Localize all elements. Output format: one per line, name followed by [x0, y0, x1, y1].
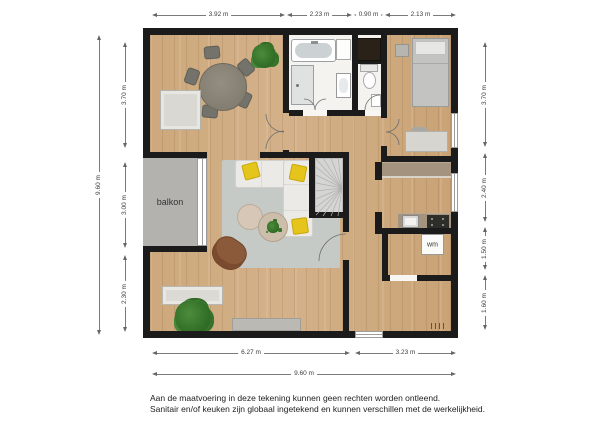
- wall: [451, 28, 458, 113]
- wall: [375, 162, 382, 180]
- bathtub: [291, 39, 336, 62]
- dim-right-4: 1.60 m: [480, 275, 490, 330]
- desk: [405, 131, 448, 152]
- wall: [352, 110, 365, 116]
- dim-top-3-label: 0.90 m: [356, 11, 382, 19]
- dim-left-1: 3.70 m: [120, 42, 130, 148]
- wall: [143, 28, 150, 152]
- wall: [381, 146, 387, 156]
- washing-machine-label: wm: [427, 241, 438, 248]
- door-threshold: [303, 110, 327, 116]
- dim-bottom-outer-label: 9.60 m: [291, 370, 317, 378]
- wall: [143, 246, 207, 252]
- dim-left-3-label: 2.30 m: [121, 281, 129, 307]
- dining-chair: [203, 45, 220, 59]
- wall: [355, 61, 381, 64]
- dim-right-3-label: 1.50 m: [481, 236, 489, 262]
- dim-left-1-label: 3.70 m: [121, 82, 129, 108]
- balcony-slider-door: [197, 158, 207, 246]
- tv-cabinet: [232, 318, 301, 331]
- wall: [343, 158, 349, 232]
- wall: [381, 35, 387, 118]
- wall: [143, 252, 150, 338]
- wall: [382, 234, 388, 281]
- washing-machine: wm: [421, 234, 444, 255]
- dim-top-4-label: 2.13 m: [408, 11, 434, 19]
- dim-right-2: 2.40 m: [480, 153, 490, 222]
- wall: [289, 110, 303, 116]
- dim-bottom-2-label: 3.23 m: [393, 349, 419, 357]
- sofa-pillow: [291, 217, 309, 235]
- door-threshold: [390, 275, 417, 281]
- floorplan-page: 3.92 m 2.23 m 0.90 m 2.13 m 9.60 m 3.70 …: [0, 0, 600, 424]
- wall: [260, 152, 349, 158]
- dim-right-1-label: 3.70 m: [481, 82, 489, 108]
- sofa-pillow: [289, 164, 308, 183]
- window: [451, 173, 458, 212]
- cooktop: [427, 215, 449, 228]
- balcony: balkon: [143, 158, 197, 246]
- dim-top-1: 3.92 m: [152, 10, 285, 20]
- bed: [412, 38, 449, 107]
- toilet-tank: [360, 64, 378, 72]
- dining-cabinet: [160, 90, 201, 130]
- disclaimer: Aan de maatvoering in deze tekening kunn…: [150, 393, 485, 415]
- wall: [343, 260, 349, 331]
- dim-left-2-label: 3.00 m: [121, 192, 129, 218]
- wall: [352, 35, 358, 116]
- dim-left-2: 3.00 m: [120, 162, 130, 248]
- wall: [381, 156, 451, 162]
- dim-top-2: 2.23 m: [287, 10, 352, 20]
- wall: [143, 331, 355, 338]
- nightstand: [395, 44, 409, 57]
- dim-left-3: 2.30 m: [120, 255, 130, 332]
- dim-bottom-1: 6.27 m: [152, 348, 350, 358]
- dim-left-outer: 9.60 m: [94, 35, 104, 335]
- washbasin: [336, 73, 351, 98]
- wall: [383, 331, 458, 338]
- wall: [309, 158, 315, 218]
- coffee-table-plant: [258, 212, 288, 242]
- kitchen-counter-top: [382, 162, 451, 178]
- toilet: [363, 72, 376, 89]
- dim-bottom-outer: 9.60 m: [152, 369, 456, 379]
- wall: [382, 275, 390, 281]
- door-threshold: [365, 110, 381, 116]
- toilet-sink: [371, 94, 381, 107]
- shower: [291, 65, 314, 105]
- staircase: [315, 158, 343, 216]
- window: [451, 113, 458, 148]
- entry-vent-marks: [431, 323, 444, 329]
- dim-right-4-label: 1.60 m: [481, 290, 489, 316]
- balcony-label: balkon: [157, 197, 184, 207]
- dim-right-1: 3.70 m: [480, 42, 490, 147]
- dining-table: [199, 63, 247, 111]
- disclaimer-line-2: Sanitair en/of keuken zijn globaal inget…: [150, 404, 485, 415]
- dim-top-4: 2.13 m: [385, 10, 456, 20]
- floorplan-drawing: balkon: [143, 28, 458, 338]
- kitchen-sink: [402, 215, 419, 228]
- dim-top-1-label: 3.92 m: [206, 11, 232, 19]
- dim-right-3: 1.50 m: [480, 227, 490, 270]
- wall: [143, 28, 458, 35]
- dim-right-2-label: 2.40 m: [481, 175, 489, 201]
- dim-top-2-label: 2.23 m: [307, 11, 333, 19]
- dim-bottom-2: 3.23 m: [355, 348, 456, 358]
- bathroom-cabinet: [336, 39, 351, 60]
- plant-icon: [252, 44, 276, 68]
- plant-icon: [175, 300, 211, 334]
- wall: [417, 275, 451, 281]
- front-door: [355, 331, 383, 338]
- dim-top-3: 0.90 m: [354, 10, 383, 20]
- dim-bottom-1-label: 6.27 m: [238, 349, 264, 357]
- dim-left-outer-label: 9.60 m: [95, 172, 103, 198]
- wall: [283, 35, 289, 113]
- disclaimer-line-1: Aan de maatvoering in deze tekening kunn…: [150, 393, 485, 404]
- wall: [143, 152, 207, 158]
- wall: [451, 212, 458, 338]
- hall-closet: [355, 38, 381, 61]
- wall: [451, 148, 458, 173]
